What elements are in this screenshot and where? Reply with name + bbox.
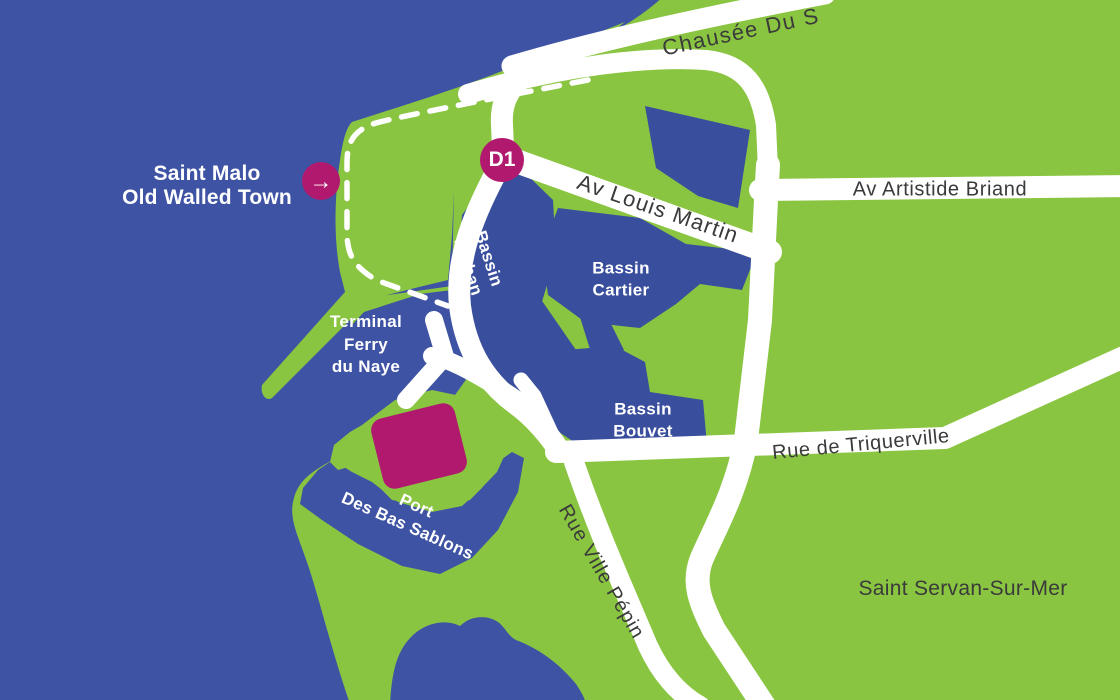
old-town-label-line2: Old Walled Town: [122, 186, 292, 210]
terminal-ferry-label: Terminal Ferry du Naye: [330, 311, 402, 379]
saint-malo-map: Saint Malo Old Walled Town → D1 Chausée …: [0, 0, 1120, 700]
terminal-ferry-label-line1: Terminal: [330, 311, 402, 334]
d1-marker-label: D1: [489, 148, 516, 172]
bassin-bouvet-label-line1: Bassin: [613, 398, 672, 420]
terminal-ferry-label-line2: Ferry: [330, 334, 402, 357]
bassin-bouvet-label-line2: Bouvet: [613, 420, 672, 442]
terminal-ferry-label-line3: du Naye: [330, 356, 402, 379]
bassin-bouvet-label: Bassin Bouvet: [613, 398, 672, 442]
bassin-cartier-label-line2: Cartier: [592, 279, 650, 301]
arrow-right-icon: →: [310, 168, 333, 195]
district-label-saint-servan: Saint Servan-Sur-Mer: [858, 577, 1067, 601]
bassin-cartier-label-line1: Bassin: [592, 257, 650, 279]
road-label-artistide-briand: Av Artistide Briand: [853, 179, 1027, 202]
old-town-arrow-badge: →: [302, 162, 340, 200]
old-town-label-line1: Saint Malo: [122, 162, 292, 186]
old-town-label: Saint Malo Old Walled Town: [122, 162, 292, 210]
d1-marker-badge: D1: [480, 138, 524, 182]
bassin-cartier-label: Bassin Cartier: [592, 257, 650, 301]
